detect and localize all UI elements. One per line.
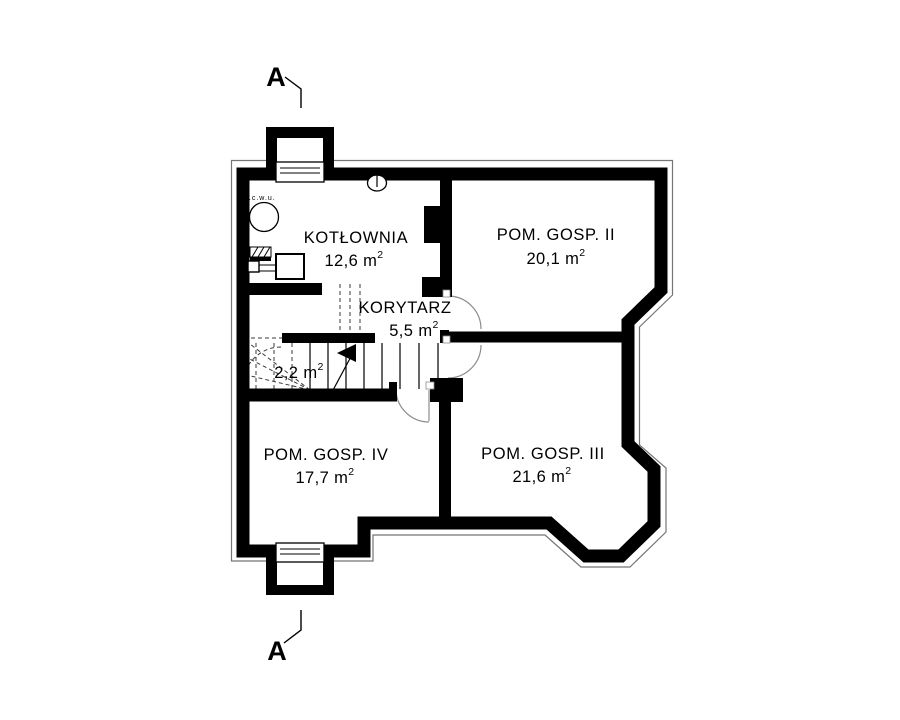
door-arc-pom-gosp-ii <box>448 296 481 329</box>
wall-block-door-iii <box>430 378 463 402</box>
jamb-marker <box>443 336 450 343</box>
floorplan-canvas: A A p.c.w.u. KOTŁOWNIA 12,6 m2 POM. GOSP… <box>0 0 900 720</box>
room-area-kotlownia: 12,6 m2 <box>324 249 383 270</box>
room-area-pom-gosp-iii: 21,6 m2 <box>512 465 571 486</box>
water-heater-label: p.c.w.u. <box>244 195 276 202</box>
room-label-kotlownia: KOTŁOWNIA <box>304 229 408 247</box>
boiler-icon <box>276 254 304 279</box>
room-label-korytarz: KORYTARZ <box>358 299 451 317</box>
door-arc-pom-gosp-iii <box>448 345 481 378</box>
window-top <box>266 127 334 182</box>
stairs <box>310 343 438 392</box>
room-area-pom-gosp-ii: 20,1 m2 <box>526 247 585 268</box>
jamb-marker <box>443 290 450 297</box>
section-label-top: A <box>266 62 286 92</box>
boiler-connector-box <box>248 261 259 272</box>
stair-treads <box>310 343 438 389</box>
room-label-pom-gosp-iv: POM. GOSP. IV <box>264 446 389 464</box>
window-icon <box>276 162 324 182</box>
water-heater-icon <box>250 203 279 232</box>
room-label-pom-gosp-ii: POM. GOSP. II <box>497 226 615 244</box>
section-line-top <box>285 77 301 108</box>
chimney-flue-block <box>424 206 441 243</box>
window-bottom <box>266 543 334 595</box>
room-label-pom-gosp-iii: POM. GOSP. III <box>481 445 605 463</box>
dashed-flight-above <box>340 284 360 332</box>
door-jamb-pomiv <box>389 382 397 390</box>
boiler-pipes <box>259 265 277 271</box>
jamb-marker <box>426 382 434 389</box>
window-icon <box>276 543 324 562</box>
room-area-korytarz: 5,5 m2 <box>389 319 439 340</box>
section-label-bottom: A <box>267 636 287 666</box>
door-arc-pom-gosp-iv <box>396 389 429 422</box>
stair-top-wall-bar <box>282 333 375 343</box>
room-area-pom-gosp-iv: 17,7 m2 <box>295 466 354 487</box>
room-area-schody: 2,2 m2 <box>274 361 324 382</box>
